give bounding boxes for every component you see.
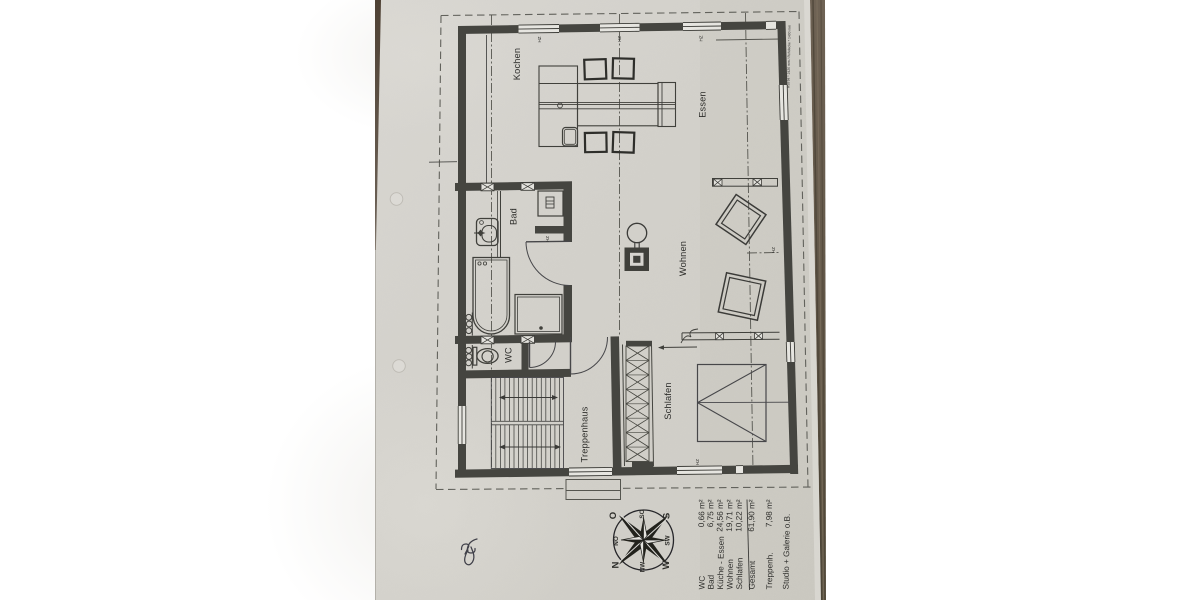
svg-text:SO: SO [639, 509, 646, 518]
svg-text:24,56 m²: 24,56 m² [715, 499, 725, 532]
svg-text:NO: NO [613, 536, 620, 546]
svg-text:Gesamt: Gesamt [748, 560, 758, 590]
svg-text:Studio + Galerie o.B.: Studio + Galerie o.B. [782, 514, 792, 590]
svg-text:Treppenh.: Treppenh. [765, 552, 775, 589]
svg-text:Bad: Bad [509, 208, 519, 225]
svg-text:SW: SW [665, 535, 672, 545]
svg-text:Schlafen: Schlafen [735, 557, 745, 589]
svg-text:HZ: HZ [545, 236, 550, 242]
svg-text:HZ: HZ [617, 36, 622, 42]
svg-text:HZ: HZ [771, 247, 776, 253]
svg-text:O: O [608, 512, 619, 519]
svg-text:61,90 m²: 61,90 m² [747, 499, 757, 532]
svg-text:Treppenhaus: Treppenhaus [580, 406, 590, 462]
svg-text:19,71 m²: 19,71 m² [725, 499, 735, 532]
svg-text:Essen: Essen [698, 91, 708, 118]
svg-text:Wohnen: Wohnen [726, 559, 736, 590]
svg-text:HZ: HZ [537, 36, 542, 42]
svg-text:10,22 m²: 10,22 m² [734, 499, 744, 532]
svg-text:WC: WC [504, 347, 514, 363]
svg-text:HZ: HZ [695, 459, 700, 465]
svg-text:Küche - Essen: Küche - Essen [716, 536, 726, 590]
svg-text:Kochen: Kochen [512, 48, 522, 80]
svg-text:6,75 m²: 6,75 m² [706, 499, 715, 527]
svg-text:7,98 m²: 7,98 m² [765, 499, 774, 527]
svg-text:Schlafen: Schlafen [663, 382, 673, 419]
svg-text:N: N [611, 561, 622, 568]
svg-text:Wohnen: Wohnen [678, 241, 688, 276]
svg-text:W: W [661, 560, 672, 569]
svg-text:0,66 m²: 0,66 m² [697, 499, 706, 527]
svg-text:WC: WC [698, 576, 707, 590]
svg-text:HZ: HZ [699, 35, 704, 41]
svg-text:Bad: Bad [707, 574, 716, 589]
svg-text:S: S [662, 513, 673, 519]
svg-text:NW: NW [640, 562, 647, 573]
